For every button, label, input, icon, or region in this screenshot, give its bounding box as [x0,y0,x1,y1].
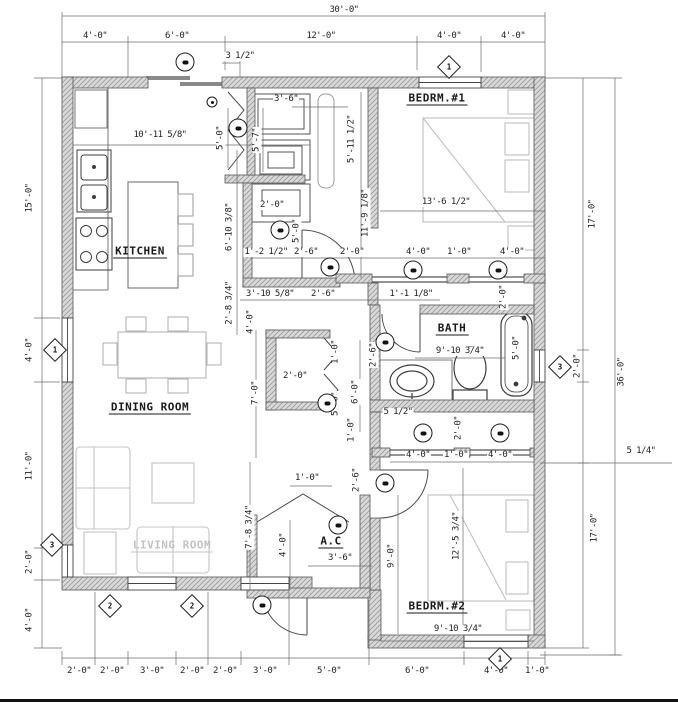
dimension-label: 7'-0" [252,380,261,406]
dimension-label: 3'-6" [327,554,353,563]
window-type-number: 1 [48,343,63,358]
dimension-label: 1'-1 1/8" [388,290,433,299]
dimension-label: 2'-0" [500,284,509,310]
dimension-label: 6'-0" [404,667,430,676]
dimension-label: 4'-0" [247,309,256,335]
dimension-label: 1'-2 1/2" [243,248,288,257]
room-label-ac-closet: A.C [318,536,343,549]
dimension-label: 4'-0" [483,667,509,676]
dimension-label: 4'-0" [500,32,526,41]
dimension-label: 2'-6" [293,248,319,257]
dimension-label: 1'-0" [294,474,320,483]
dimension-label: 5'-0" [217,125,226,151]
window-type-number: 3 [553,360,568,375]
window-type-marker: 2 [180,594,204,618]
dimension-label: 1'-0" [443,451,469,460]
door-marker [414,424,433,443]
dimension-label: 4'-0" [26,337,35,363]
door-marker [229,119,248,138]
room-label-living-room: LIVING ROOM [131,540,213,553]
dimension-label: 9'-10 3/4" [435,347,485,356]
dimension-label: 10'-11 5/8" [132,131,187,140]
dimension-label: 5'-11 1/2" [348,114,357,164]
dimension-label: 5'-0" [293,218,302,244]
door-marker [376,474,395,493]
room-label-bedroom-2: BEDRM.#2 [407,601,468,614]
dimension-label: 4'-0" [405,451,431,460]
dimension-label: 4'-0" [405,248,431,257]
window-type-marker: 3 [40,533,64,557]
dimension-label: 1'-0" [348,417,357,443]
dimension-label: 2'-0" [66,667,92,676]
dimension-label: 3 1/2" [225,52,256,61]
window-type-number: 2 [103,599,118,614]
door-marker [176,53,195,72]
dimension-label: 11'-0" [26,451,35,482]
door-marker [271,221,290,240]
door-marker [489,261,508,280]
dimension-label: 2'-0" [179,667,205,676]
window-type-marker: 3 [548,355,572,379]
dimension-label: 2'-6" [310,290,336,299]
dimension-label: 9'-10 3/4" [433,625,483,634]
dimension-label: 4'-0" [487,451,513,460]
window-type-number: 1 [493,652,508,667]
dimension-label: 2'-0" [455,415,464,441]
dimension-label: 3'-10 5/8" [245,290,295,299]
room-label-kitchen: KITCHEN [113,246,167,259]
dimension-label: 2'-0" [99,667,125,676]
window-type-marker: 1 [437,55,461,79]
dimension-label: 6'-0" [352,379,361,405]
window-type-marker: 2 [98,594,122,618]
window-type-number: 3 [45,538,60,553]
dimension-label: 2'-6" [353,467,362,493]
door-marker [491,424,510,443]
dimension-label: 15'-0" [26,183,35,214]
dimension-label: 17'-0" [589,199,598,230]
door-marker [404,261,423,280]
room-label-bedroom-1: BEDRM.#1 [407,93,468,106]
dimension-label: 12'-0" [306,32,337,41]
door-marker [329,516,348,535]
dimension-label: 1'-0" [524,667,550,676]
dimension-label: 5'-0" [316,667,342,676]
dimension-label: 2'-0" [282,372,308,381]
door-marker [321,258,340,277]
dimension-label: 4'-0" [26,607,35,633]
window-type-marker: 1 [43,338,67,362]
dimension-label: 2'-8 3/4" [226,280,235,325]
door-marker [207,97,218,108]
dimension-label: 9'-0" [388,543,397,569]
dimension-label: 1'-0" [332,339,341,365]
window-type-number: 2 [185,599,200,614]
door-marker [376,333,395,352]
dimension-label: 5 1/2" [383,408,414,417]
window-type-number: 1 [442,60,457,75]
dimension-label: 30'-0" [329,6,360,15]
door-marker [253,596,272,615]
floor-plan-sheet: 30'-0"4'-0"6'-0"12'-0"4'-0"4'-0"3 1/2"15… [0,0,678,710]
dimension-label: 4'-0" [82,32,108,41]
dimension-label: 17'-0" [591,513,600,544]
dimension-label: 3'-0" [252,667,278,676]
dimension-label: 2'-0" [574,353,583,379]
dimension-label: 4'-0" [499,248,525,257]
dimension-label: 1'-0" [446,248,472,257]
dimension-label: 2'-0" [212,667,238,676]
dimension-label: 36'-0" [618,357,627,388]
room-label-bath: BATH [436,323,469,336]
dimension-label: 2'-0" [259,201,285,210]
door-marker [318,394,337,413]
dimension-label: 5'-7" [253,127,262,153]
dimension-label: 6'-10 3/8" [226,202,235,252]
dimension-label: 7'-8 3/4" [246,504,255,549]
dimension-label: 5'-0" [513,335,522,361]
dimension-label: 13'-6 1/2" [421,198,471,207]
dimension-label: 11'-9 1/8" [362,188,371,238]
labels-layer: 30'-0"4'-0"6'-0"12'-0"4'-0"4'-0"3 1/2"15… [0,0,678,710]
dimension-label: 4'-0" [280,532,289,558]
dimension-label: 2'-0" [339,248,365,257]
room-label-dining-room: DINING ROOM [109,402,191,415]
dimension-label: 6'-0" [164,32,190,41]
sheet-border-line [0,699,678,702]
dimension-label: 2'-0" [26,549,35,575]
dimension-label: 3'-0" [139,667,165,676]
dimension-label: 12'-5 3/4" [453,511,462,561]
dimension-label: 5 1/4" [626,447,657,456]
dimension-label: 3'-6" [273,95,299,104]
dimension-label: 4'-0" [436,32,462,41]
